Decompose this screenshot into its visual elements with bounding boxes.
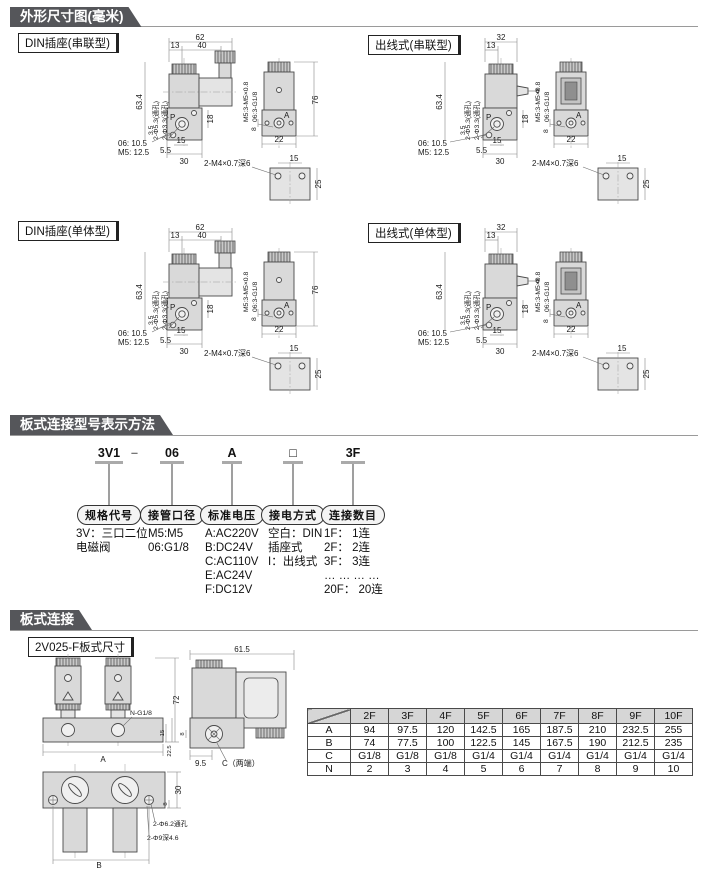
port-a-label: A (284, 111, 290, 120)
table-cell: G1/4 (541, 750, 579, 763)
table-row-header: A (308, 724, 351, 737)
front-view: P (483, 248, 539, 336)
note-m5-label: M5: 12.5 (418, 338, 450, 347)
dim-13-label: 13 (171, 41, 180, 50)
side-view: A 76 M5:3-M5×0.8 06:3-G1/8 8 22 (243, 248, 320, 338)
port-thread-label: N-G1/8 (130, 710, 152, 717)
dim-55-label: 5.5 (160, 146, 172, 155)
dim-22-label: 22 (567, 135, 576, 144)
dim-55-label: 5.5 (476, 336, 488, 345)
din-plug-stem (219, 63, 231, 78)
coil-body (169, 74, 199, 108)
table-corner-cell (308, 709, 351, 724)
port-p-label: P (486, 113, 491, 122)
table-row-header: B (308, 737, 351, 750)
model-code-electric: □ (283, 446, 303, 464)
side-view: A M5:3-M5×0.8 06:3-G1/8 8 22 (535, 58, 588, 148)
dim-18-label: 18 (521, 304, 530, 313)
foot-dim-25: 25 (314, 369, 323, 378)
table-cell: 235 (655, 737, 693, 750)
dim-35-label: 3.5 (460, 125, 467, 135)
table-col-header: 9F (617, 709, 655, 724)
catalog-page: 外形尺寸图(毫米) DIN插座(串联型) 出线式(串联型) DIN插座(单体型)… (0, 0, 703, 870)
plate-bottom-view: 30 8 2-Φ6.2通孔 2-Φ9深4.6 B (35, 758, 200, 870)
dim-c-label: C（两端） (222, 758, 260, 768)
plate-dimension-table: 2F 3F 4F 5F 6F 7F 8F 9F 10F A 94 97.5 12… (307, 708, 693, 776)
port-p-label: P (170, 303, 175, 312)
section-header-plate: 板式连接 (10, 610, 92, 630)
dim-225-label: 22.5 (167, 745, 173, 756)
table-cell: G1/4 (655, 750, 693, 763)
table-cell: 187.5 (541, 724, 579, 737)
model-code-dash: – (131, 446, 138, 460)
dim-35-label: 3.5 (148, 315, 155, 325)
table-row: A 94 97.5 120 142.5 165 187.5 210 232.5 … (308, 724, 693, 737)
table-cell: 10 (655, 763, 693, 776)
table-cell: G1/4 (579, 750, 617, 763)
foot-dim-15: 15 (618, 344, 627, 353)
dim-35-label: 3.5 (460, 315, 467, 325)
coil-outline (113, 808, 137, 852)
dim-55-label: 5.5 (160, 336, 172, 345)
table-cell: 3 (389, 763, 427, 776)
section-header-model-code: 板式连接型号表示方法 (10, 415, 173, 435)
table-cell: G1/8 (351, 750, 389, 763)
foot-thread-label: 2-M4×0.7深6 (204, 159, 251, 168)
dim-height-label: 63.4 (435, 284, 444, 300)
voltage-options: A:AC220VB:DC24V C:AC110VE:AC24V F:DC12V (205, 527, 259, 597)
dim-8-label: 8 (251, 317, 258, 321)
coil-cap (196, 660, 222, 668)
port-a-label: A (284, 301, 290, 310)
connector-line (231, 464, 233, 505)
dim-35-label: 3.5 (148, 125, 155, 135)
bubble-count: 连接数目 (321, 505, 385, 525)
din-plug-cap (215, 51, 235, 63)
connector-line (352, 464, 354, 505)
drawing-din-single: P 62 13 40 63.4 2-Φ5.3(通孔) 2-Φ3.3(通孔) 3.… (118, 224, 333, 398)
wire-terminal (517, 86, 528, 96)
dim-8-label: 8 (163, 802, 169, 805)
table-cell: 6 (503, 763, 541, 776)
section-title: 板式连接 (20, 612, 74, 627)
dim-b-label: B (96, 861, 101, 870)
port-p-label: P (170, 113, 175, 122)
dim-30-label: 30 (496, 157, 505, 166)
drawing-wire-single: P 32 13 63.4 2-Φ5.3(通孔) 2-Φ3.3(通孔) 3.5 1… (388, 224, 678, 398)
table-cell: 5 (465, 763, 503, 776)
dim-22-label: 22 (275, 325, 284, 334)
section-title: 外形尺寸图(毫米) (20, 9, 124, 24)
table-row: C G1/8 G1/8 G1/8 G1/4 G1/4 G1/4 G1/4 G1/… (308, 750, 693, 763)
foot-dim-15: 15 (290, 154, 299, 163)
mounting-foot-view: 15 2-M4×0.7深6 25 (204, 344, 323, 394)
dim-height-label: 63.4 (135, 284, 144, 300)
foot-thread-label: 2-M4×0.7深6 (204, 349, 251, 358)
port-a-label: A (576, 301, 582, 310)
side-note-m5: M5:3-M5×0.8 (243, 272, 250, 312)
table-cell: 255 (655, 724, 693, 737)
dim-22-label: 22 (275, 135, 284, 144)
table-row: B 74 77.5 100 122.5 145 167.5 190 212.5 … (308, 737, 693, 750)
side-note-06: 06:3-G1/8 (252, 282, 259, 312)
section-divider (10, 435, 698, 436)
dim-76-label: 76 (311, 95, 320, 104)
plate-front-view: N-G1/8 72 15 22.5 A (35, 652, 185, 768)
connector-line (108, 464, 110, 505)
dim-13-label: 13 (171, 231, 180, 240)
dim-8-label: 8 (543, 319, 550, 323)
table-cell: 190 (579, 737, 617, 750)
note-06-label: 06: 10.5 (418, 329, 447, 338)
dim-13-label: 13 (487, 231, 496, 240)
dim-15-label: 15 (493, 136, 502, 145)
mounting-foot-view: 15 2-M4×0.7深6 25 (204, 154, 323, 204)
table-cell: 165 (503, 724, 541, 737)
front-view: P (163, 51, 236, 146)
coil-cap (172, 64, 196, 74)
dim-30-label: 30 (174, 785, 183, 794)
table-cell: G1/4 (503, 750, 541, 763)
dim-height-label: 63.4 (135, 94, 144, 110)
table-header-row: 2F 3F 4F 5F 6F 7F 8F 9F 10F (308, 709, 693, 724)
hole-62-label: 2-Φ6.2通孔 (153, 819, 188, 828)
model-code-voltage: A (222, 446, 242, 464)
dim-615-label: 61.5 (234, 645, 250, 654)
dim-15-label: 15 (493, 326, 502, 335)
table-cell: 100 (427, 737, 465, 750)
table-row-header: C (308, 750, 351, 763)
port-options: M5:M506:G1/8 (148, 527, 189, 555)
foot-thread-label: 2-M4×0.7深6 (532, 159, 579, 168)
table-cell: 120 (427, 724, 465, 737)
table-col-header: 3F (389, 709, 427, 724)
side-note-06: 06:3-G1/8 (252, 92, 259, 122)
drawing-din-series: P 62 13 40 63.4 2-Φ5.3(通孔) 2-Φ3.3(通孔) 3.… (118, 34, 333, 208)
side-note-06: 06:3-G1/8 (544, 92, 551, 122)
foot-dim-25: 25 (642, 369, 651, 378)
front-view: P (163, 241, 236, 336)
dim-30-label: 30 (180, 347, 189, 356)
side-note-m5: M5:3-M5×0.8 (535, 82, 542, 122)
table-col-header: 6F (503, 709, 541, 724)
section-title: 板式连接型号表示方法 (20, 417, 155, 432)
side-note-m5: M5:3-M5×0.8 (243, 82, 250, 122)
dim-15-label: 15 (177, 326, 186, 335)
manifold-bar (43, 718, 163, 742)
bubble-voltage: 标准电压 (200, 505, 264, 525)
dim-13-label: 13 (487, 41, 496, 50)
front-view: P (483, 58, 539, 146)
table-col-header: 8F (579, 709, 617, 724)
dim-30-label: 30 (180, 157, 189, 166)
table-cell: 7 (541, 763, 579, 776)
plate-side-view: 61.5 8 9.5 C（两端） (182, 646, 304, 770)
table-cell: 142.5 (465, 724, 503, 737)
foot-dim-25: 25 (642, 179, 651, 188)
section-divider (10, 630, 698, 631)
connector-line (171, 464, 173, 505)
drawing-label-din-series: DIN插座(串联型) (18, 33, 119, 53)
coil-outline (63, 808, 87, 852)
drawing-label-din-single: DIN插座(单体型) (18, 221, 119, 241)
coil-body (192, 668, 236, 718)
side-note-m5: M5:3-M5×0.8 (535, 272, 542, 312)
table-cell: 97.5 (389, 724, 427, 737)
dim-18-label: 18 (521, 114, 530, 123)
table-cell: 2 (351, 763, 389, 776)
dim-15-label: 15 (177, 136, 186, 145)
dim-width-label: 32 (497, 223, 506, 232)
side-view: A 76 M5:3-M5×0.8 06:3-G1/8 8 22 (243, 58, 320, 148)
mounting-foot-view: 15 2-M4×0.7深6 25 (532, 344, 651, 394)
table-cell: 232.5 (617, 724, 655, 737)
note-06-label: 06: 10.5 (118, 329, 147, 338)
bubble-electric: 接电方式 (261, 505, 325, 525)
note-m5-label: M5: 12.5 (118, 338, 150, 347)
dim-8-label: 8 (543, 129, 550, 133)
table-cell: 74 (351, 737, 389, 750)
dim-width-label: 32 (497, 33, 506, 42)
side-view: A M5:3-M5×0.8 06:3-G1/8 8 22 (535, 248, 588, 338)
connector-line (292, 464, 294, 505)
table-col-header: 4F (427, 709, 465, 724)
foot-thread-label: 2-M4×0.7深6 (532, 349, 579, 358)
table-col-header: 2F (351, 709, 389, 724)
table-cell: 212.5 (617, 737, 655, 750)
table-cell: G1/8 (389, 750, 427, 763)
dim-18-label: 18 (206, 304, 215, 313)
table-cell: 77.5 (389, 737, 427, 750)
spec-options: 3V：三口二位电磁阀 (76, 527, 148, 555)
foot-dim-15: 15 (618, 154, 627, 163)
dim-22-label: 22 (567, 325, 576, 334)
table-cell: 9 (617, 763, 655, 776)
dim-55-label: 5.5 (476, 146, 488, 155)
table-cell: G1/8 (427, 750, 465, 763)
note-06-label: 06: 10.5 (118, 139, 147, 148)
bubble-spec-code: 规格代号 (77, 505, 141, 525)
note-m5-label: M5: 12.5 (418, 148, 450, 157)
drawing-wire-series: P 32 13 63.4 2-Φ5.3(通孔) 2-Φ3.3(通孔) 3.5 1… (388, 34, 678, 208)
hole-9-label: 2-Φ9深4.6 (147, 833, 179, 842)
dim-40-label: 40 (198, 41, 207, 50)
table-cell: G1/4 (465, 750, 503, 763)
section-header-outline-dimensions: 外形尺寸图(毫米) (10, 7, 142, 27)
hole-33-label: 2-Φ3.3(通孔) (472, 101, 481, 140)
foot-dim-25: 25 (314, 179, 323, 188)
model-code-count: 3F (341, 446, 365, 464)
table-cell: 4 (427, 763, 465, 776)
dim-40-label: 40 (198, 231, 207, 240)
table-row-header: N (308, 763, 351, 776)
dim-72-label: 72 (172, 695, 181, 704)
dim-30-label: 30 (496, 347, 505, 356)
dim-76-label: 76 (311, 285, 320, 294)
count-options: 1F： 1连2F： 2连 3F： 3连… … … … 20F： 20连 (324, 527, 383, 597)
dim-height-label: 63.4 (435, 94, 444, 110)
table-cell: 94 (351, 724, 389, 737)
electric-options: 空白：DIN插座式 I：出线式 (268, 527, 322, 569)
port-a-label: A (576, 111, 582, 120)
table-col-header: 7F (541, 709, 579, 724)
dim-8-label: 8 (180, 732, 186, 735)
table-cell: 145 (503, 737, 541, 750)
dim-18-label: 18 (206, 114, 215, 123)
dim-15-label: 15 (160, 730, 166, 736)
model-code-spec: 3V1 (95, 446, 123, 464)
table-cell: 210 (579, 724, 617, 737)
dim-8-label: 8 (251, 127, 258, 131)
table-cell: 122.5 (465, 737, 503, 750)
table-cell: G1/4 (617, 750, 655, 763)
foot-dim-15: 15 (290, 344, 299, 353)
note-06-label: 06: 10.5 (418, 139, 447, 148)
table-cell: 167.5 (541, 737, 579, 750)
hole-33-label: 2-Φ3.3(通孔) (472, 291, 481, 330)
bubble-port-size: 接管口径 (140, 505, 204, 525)
side-note-06: 06:3-G1/8 (544, 282, 551, 312)
note-m5-label: M5: 12.5 (118, 148, 150, 157)
valve-unit (55, 658, 81, 718)
table-row: N 2 3 4 5 6 7 8 9 10 (308, 763, 693, 776)
table-col-header: 5F (465, 709, 503, 724)
mounting-foot-view: 15 2-M4×0.7深6 25 (532, 154, 651, 204)
model-code-port: 06 (160, 446, 184, 464)
table-cell: 8 (579, 763, 617, 776)
port-p-label: P (486, 303, 491, 312)
table-col-header: 10F (655, 709, 693, 724)
valve-unit (105, 658, 131, 718)
